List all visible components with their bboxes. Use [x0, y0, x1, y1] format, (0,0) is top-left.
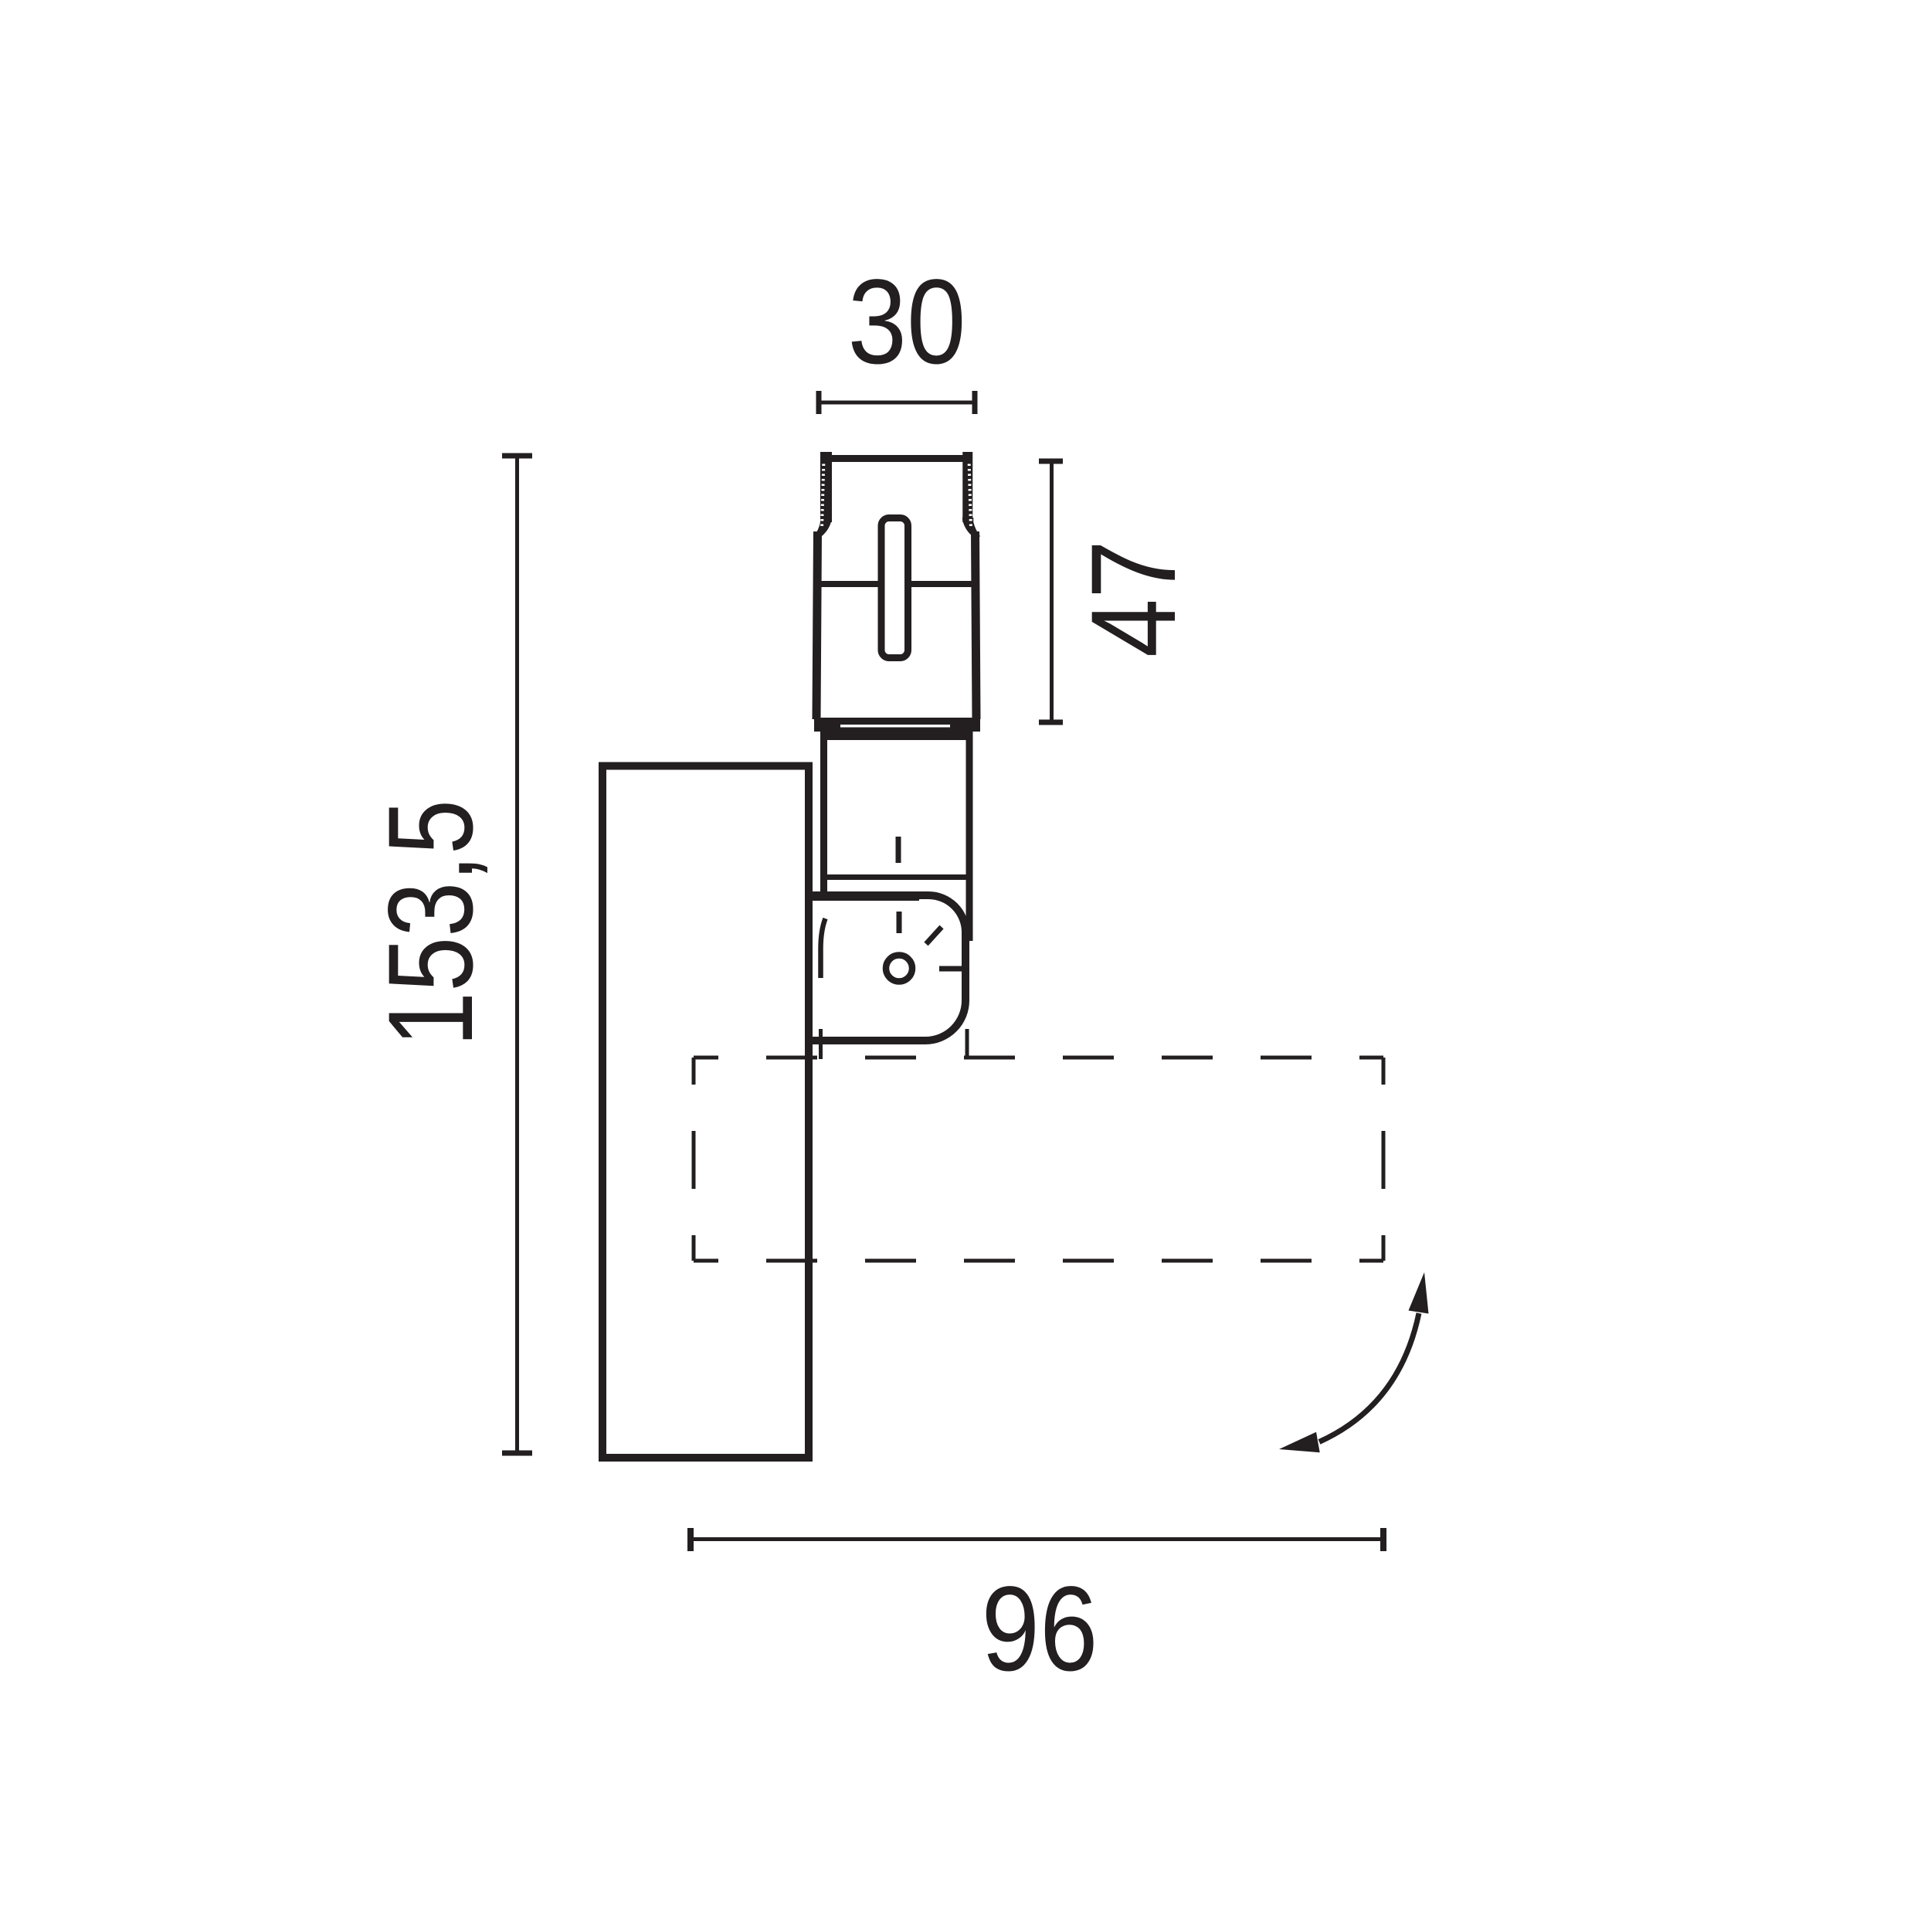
svg-text:30: 30 — [848, 255, 966, 389]
svg-text:153,5: 153,5 — [364, 800, 498, 1047]
svg-text:47: 47 — [1067, 540, 1201, 657]
svg-text:96: 96 — [982, 1562, 1098, 1696]
